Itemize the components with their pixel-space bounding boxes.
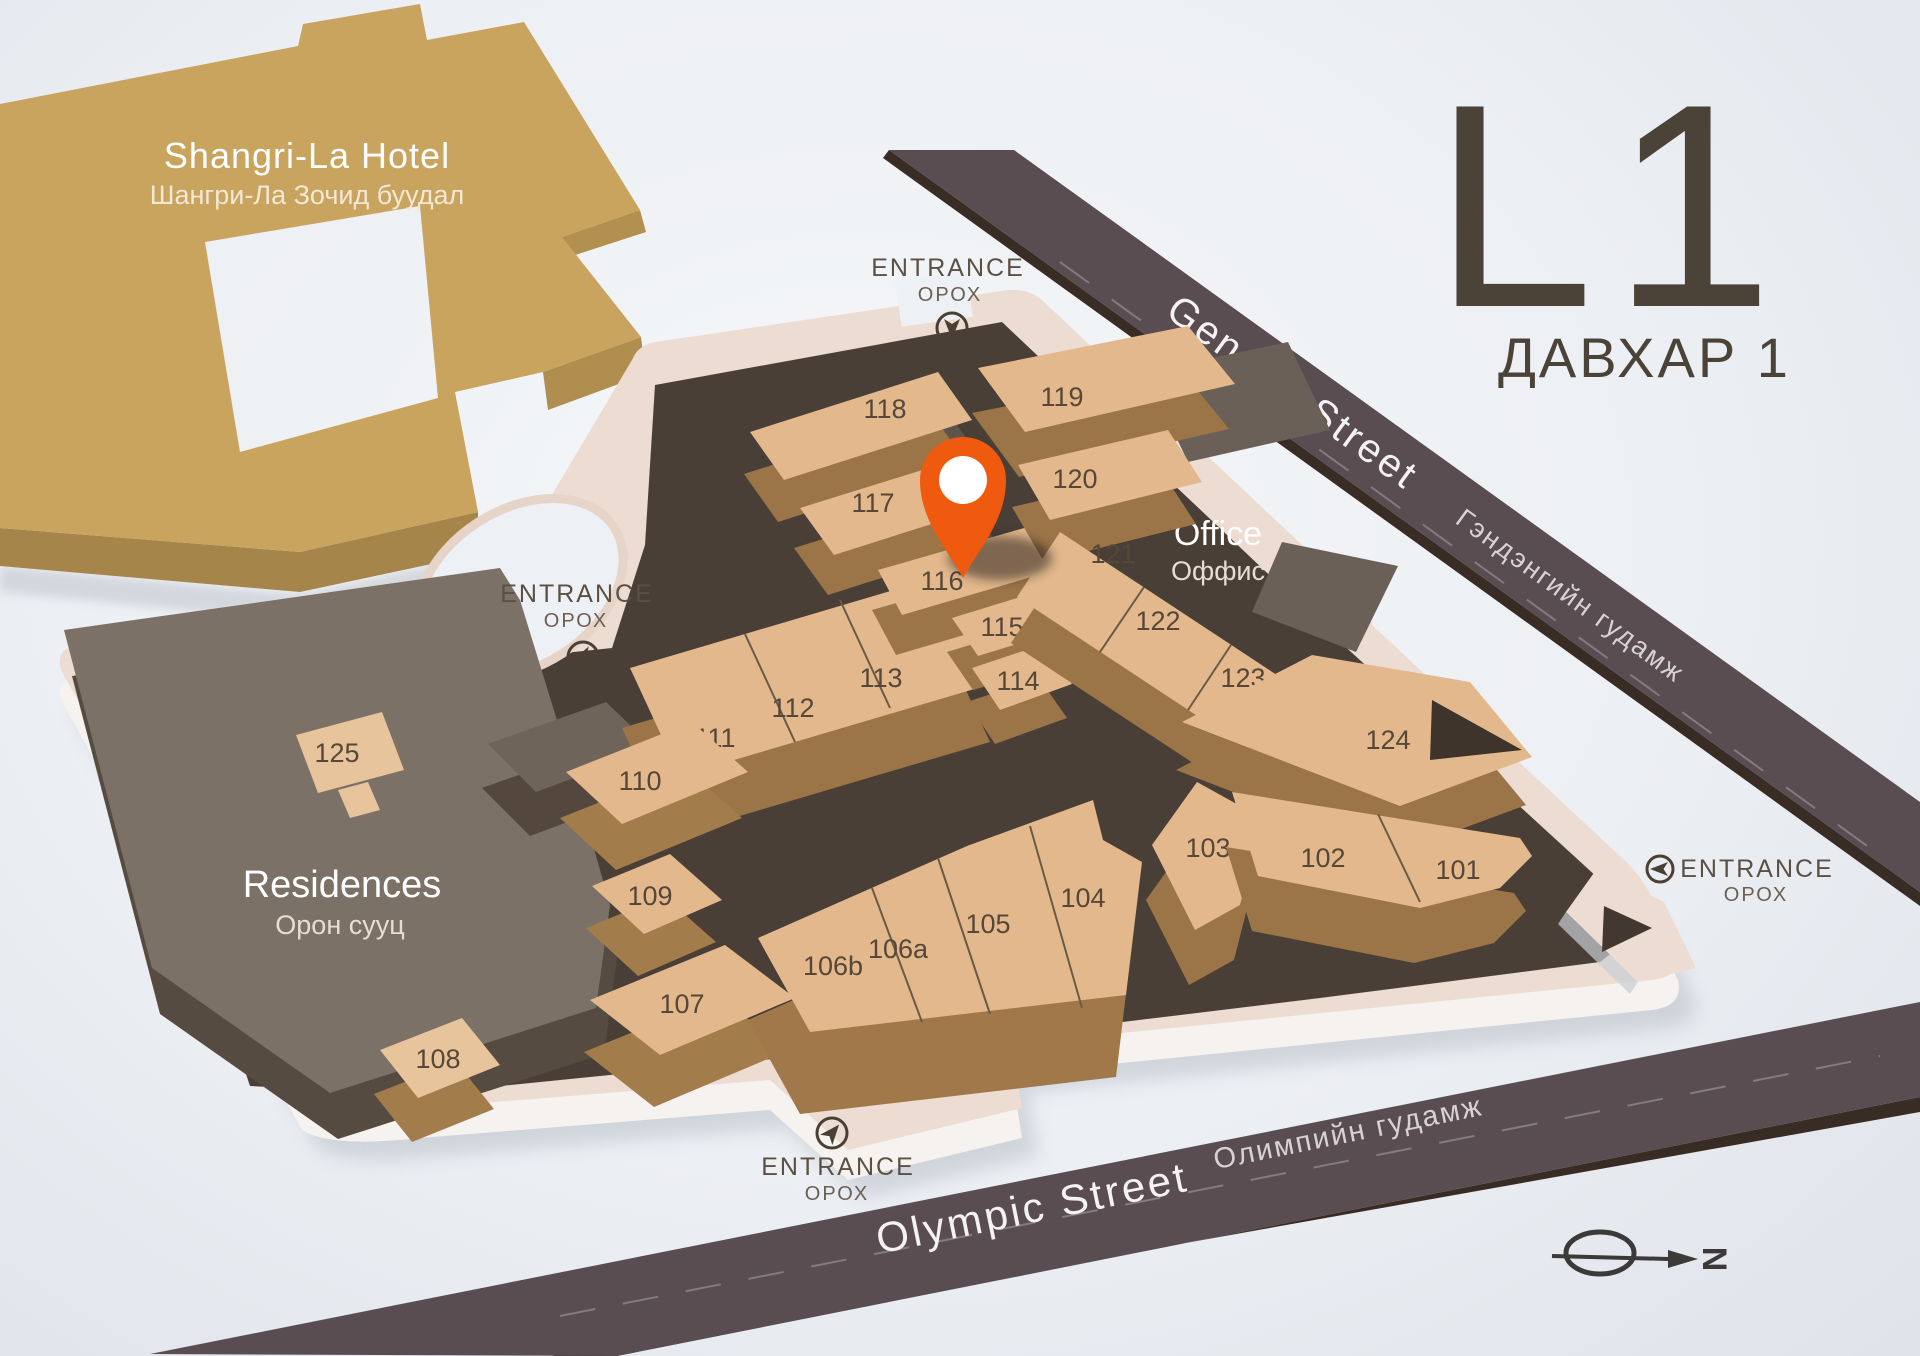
unit-122-label: 122 [1135, 606, 1180, 636]
entrance-right-arrow-icon [1650, 862, 1668, 876]
unit-124-label: 124 [1365, 725, 1410, 755]
floor-plan-map: Shangri-La Hotel Шангри-Ла Зочид буудал … [0, 0, 1920, 1356]
hotel-name-label: Shangri-La Hotel [164, 135, 450, 176]
residences-block: 125 Residences Орон сууц [64, 568, 618, 1139]
unit-117-label: 117 [851, 488, 894, 518]
unit-114-label: 114 [996, 666, 1039, 696]
unit-107-label: 107 [659, 989, 704, 1019]
level-code: L1 [1433, 44, 1792, 368]
unit-106b-label: 106b [803, 951, 863, 981]
compass-ellipse [1566, 1232, 1634, 1274]
residences-label-mn: Орон сууц [275, 910, 404, 940]
level-indicator: L1 ДАВХАР 1 [1433, 44, 1792, 389]
level-name-mn: ДАВХАР 1 [1498, 326, 1791, 389]
unit-120-label: 120 [1052, 464, 1097, 494]
unit-105-label: 105 [965, 909, 1010, 939]
unit-125-label: 125 [314, 738, 359, 768]
pin-dot [939, 456, 987, 504]
hotel-roof [0, 4, 641, 552]
unit-113-label: 113 [859, 663, 902, 693]
unit-109-label: 109 [627, 881, 672, 911]
entrance-right: ENTRANCE ОРОХ [1647, 855, 1834, 906]
entrance-left-label: ENTRANCE [500, 580, 654, 608]
unit-102-label: 102 [1300, 843, 1345, 873]
entrance-left-label-mn: ОРОХ [544, 610, 608, 632]
entrance-bottom-label-mn: ОРОХ [805, 1183, 869, 1205]
unit-106a-label: 106a [868, 934, 929, 964]
unit-101-label: 101 [1435, 855, 1480, 885]
compass-arrowhead [1668, 1250, 1698, 1268]
unit-112-label: 112 [771, 693, 814, 723]
unit-110-label: 110 [618, 766, 661, 796]
genden-street-name-mn: Гэндэнгийн гудамж [1451, 503, 1691, 689]
compass-north-icon: N [1552, 1232, 1733, 1274]
entrance-right-label-mn: ОРОХ [1724, 884, 1788, 906]
hotel-name-mn-label: Шангри-Ла Зочид буудал [150, 180, 464, 210]
unit-104-label: 104 [1060, 883, 1105, 913]
unit-103-label: 103 [1185, 833, 1230, 863]
office-label-mn: Оффис [1171, 556, 1265, 586]
entrance-top-label-mn: ОРОХ [918, 284, 982, 306]
entrance-right-label: ENTRANCE [1680, 855, 1834, 883]
unit-116-label: 116 [920, 566, 963, 596]
unit-108-label: 108 [415, 1044, 460, 1074]
entrance-bottom-label: ENTRANCE [761, 1153, 915, 1181]
residences-label: Residences [243, 864, 442, 906]
unit-118-label: 118 [863, 394, 906, 424]
unit-119-label: 119 [1040, 382, 1083, 412]
entrance-top-label: ENTRANCE [871, 254, 1025, 282]
mall-map-page: Shangri-La Hotel Шангри-Ла Зочид буудал … [0, 0, 1920, 1356]
compass-north-label: N [1695, 1247, 1733, 1272]
unit-121-label: 121 [1090, 539, 1135, 569]
